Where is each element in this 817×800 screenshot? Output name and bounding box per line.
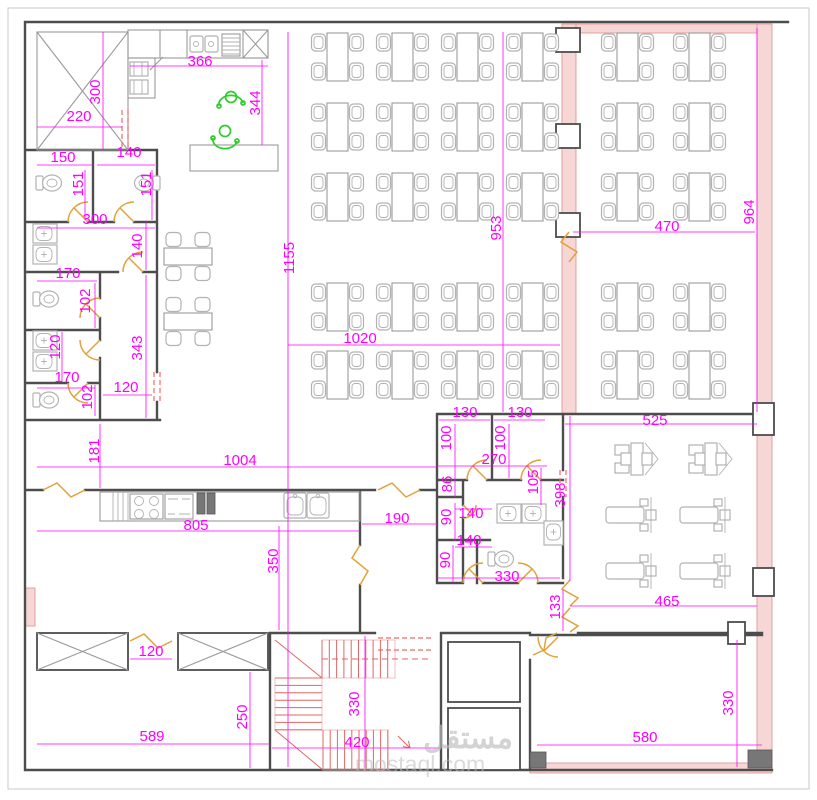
dimension-label: 150 <box>50 149 75 166</box>
side-table <box>164 233 212 281</box>
dimension-label: 420 <box>344 734 369 751</box>
dining-table <box>602 33 654 81</box>
dining-table <box>312 351 364 399</box>
toilet-icon <box>33 392 59 408</box>
door-swings <box>68 202 558 657</box>
dining-table <box>312 283 364 331</box>
dining-table <box>674 351 726 399</box>
dimension-label: 190 <box>384 510 409 527</box>
dimension-label: 130 <box>507 404 532 421</box>
dining-table <box>602 351 654 399</box>
dining-table <box>507 173 559 221</box>
dining-table <box>507 33 559 81</box>
dimension-label: 1155 <box>281 242 298 274</box>
dining-table <box>674 103 726 151</box>
dimension-label: 100 <box>492 425 509 450</box>
dimension-label: 140 <box>129 233 146 258</box>
dining-table <box>312 103 364 151</box>
reception-desk <box>190 145 278 171</box>
toilet-icon <box>33 291 59 307</box>
dimension-label: 580 <box>632 729 657 746</box>
dimension-label: 133 <box>547 594 564 619</box>
dimension-label: 102 <box>79 384 96 409</box>
dimension-label: 270 <box>481 451 506 468</box>
dining-table <box>674 33 726 81</box>
toilet-icon <box>36 175 62 191</box>
dining-table <box>602 173 654 221</box>
dining-table <box>377 33 429 81</box>
sink-icon <box>544 521 563 545</box>
dining-table <box>602 103 654 151</box>
dining-table <box>442 351 494 399</box>
dimension-label: 465 <box>654 593 679 610</box>
dimension-label: 330 <box>720 690 737 715</box>
toilet-icon <box>488 551 514 567</box>
dining-table <box>377 173 429 221</box>
dimension-label: 86 <box>439 476 456 493</box>
dimension-label: 350 <box>265 548 282 573</box>
floor-plan-canvas: 3663002203441501401511513001401701023431… <box>0 0 817 800</box>
dimension-label: 300 <box>82 211 107 228</box>
dimension-label: 250 <box>234 704 251 729</box>
dimension-label: 398 <box>552 482 569 507</box>
dining-table <box>377 283 429 331</box>
dimension-label: 964 <box>741 199 758 224</box>
dimension-label: 120 <box>47 334 64 359</box>
dimension-label: 220 <box>66 108 91 125</box>
dimension-labels: 3663002203441501401511513001401701023431… <box>47 53 758 751</box>
gym-machine <box>689 443 732 475</box>
dining-table <box>602 283 654 331</box>
gym-machine <box>606 497 656 533</box>
dining-table <box>312 173 364 221</box>
dimension-label: 102 <box>77 288 94 313</box>
dimension-label: 805 <box>183 517 208 534</box>
dining-table <box>507 103 559 151</box>
dimension-label: 151 <box>70 171 87 196</box>
gym-machine <box>680 497 730 533</box>
dimension-label: 1004 <box>223 452 256 469</box>
dining-table <box>442 33 494 81</box>
kitchen-counter <box>100 492 360 521</box>
gym-machine <box>680 553 730 589</box>
dining-table <box>507 351 559 399</box>
side-table <box>164 298 212 346</box>
dimension-label: 343 <box>129 335 146 360</box>
dimension-label: 366 <box>187 53 212 70</box>
dimension-label: 120 <box>138 643 163 660</box>
dining-table <box>507 283 559 331</box>
dimension-label: 589 <box>139 728 164 745</box>
dining-table <box>442 103 494 151</box>
staff-people <box>211 92 245 149</box>
dimension-label: 90 <box>438 509 455 526</box>
dining-tables <box>164 33 726 399</box>
dining-table <box>674 283 726 331</box>
dimension-label: 140 <box>116 144 141 161</box>
gym-machine <box>606 553 656 589</box>
dining-table <box>377 103 429 151</box>
dimension-label: 140 <box>456 532 481 549</box>
dimension-label: 330 <box>346 691 363 716</box>
dimension-label: 330 <box>494 568 519 585</box>
floor-plan-page: 3663002203441501401511513001401701023431… <box>0 0 817 800</box>
dimension-label: 344 <box>247 90 264 115</box>
shaft-x-box <box>37 32 128 150</box>
dimension-label: 90 <box>437 552 454 569</box>
dimension-label: 170 <box>55 265 80 282</box>
dimension-label: 953 <box>488 215 505 240</box>
dining-table <box>442 283 494 331</box>
watermark-latin: mostaql.com <box>355 751 485 777</box>
dining-table <box>674 173 726 221</box>
gym-equipment <box>606 443 732 589</box>
dimension-label: 300 <box>87 79 104 104</box>
sink-icon <box>497 504 521 523</box>
dimension-label: 181 <box>86 438 103 463</box>
dimension-label: 100 <box>438 425 455 450</box>
dimension-label: 1020 <box>343 330 376 347</box>
dining-table <box>312 33 364 81</box>
dimension-label: 120 <box>113 379 138 396</box>
dimension-label: 470 <box>654 218 679 235</box>
dimension-label: 105 <box>525 469 542 494</box>
dimension-label: 151 <box>138 171 155 196</box>
sink-icon <box>33 224 57 243</box>
dimension-label: 525 <box>642 412 667 429</box>
sink-icon <box>522 504 546 523</box>
dimension-label: 170 <box>54 369 79 386</box>
gym-machine <box>615 443 658 475</box>
dimension-label: 130 <box>452 404 477 421</box>
dining-table <box>377 351 429 399</box>
sink-icon <box>33 245 57 264</box>
dining-table <box>442 173 494 221</box>
dimension-label: 140 <box>458 505 483 522</box>
